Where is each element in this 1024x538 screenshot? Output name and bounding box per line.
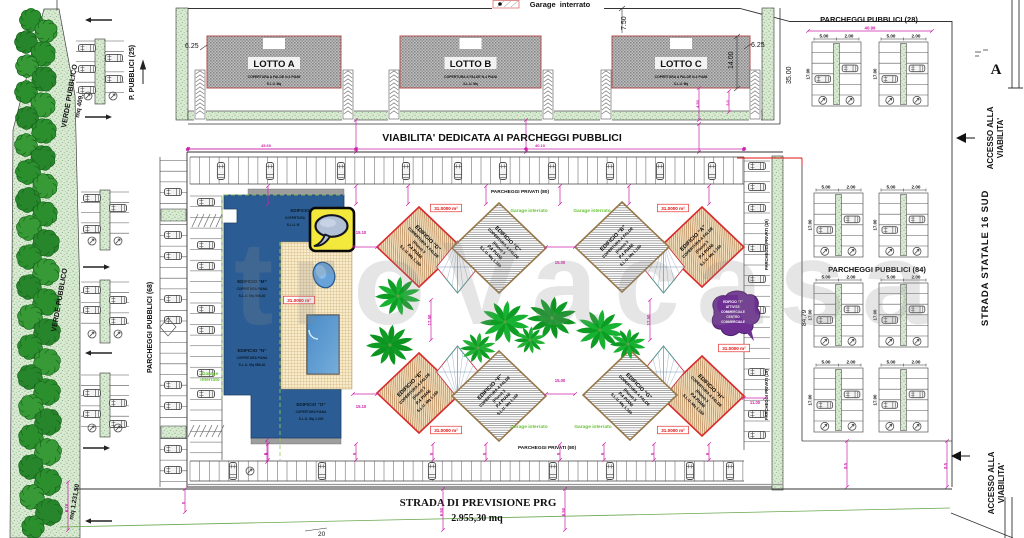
svg-text:ACCESSO ALLA: ACCESSO ALLA	[987, 451, 996, 514]
svg-text:Garage interrato: Garage interrato	[510, 208, 547, 214]
svg-text:6.25: 6.25	[751, 42, 765, 49]
svg-text:VIABILITA': VIABILITA'	[996, 118, 1005, 159]
svg-text:COPERTURA A FALDE N.4 PIANI: COPERTURA A FALDE N.4 PIANI	[248, 75, 301, 79]
svg-text:LOTTO B: LOTTO B	[450, 59, 492, 70]
svg-text:31.0000 m²: 31.0000 m²	[434, 206, 458, 211]
svg-text:6.50: 6.50	[439, 507, 444, 516]
svg-text:40.99: 40.99	[865, 26, 877, 31]
svg-text:S.L.U. Mq: S.L.U. Mq	[463, 82, 478, 86]
svg-text:EDIFICIO: EDIFICIO	[290, 208, 310, 213]
svg-text:15.00: 15.00	[555, 378, 566, 383]
svg-text:3.0: 3.0	[725, 99, 730, 105]
svg-text:S.L.U. Mq: S.L.U. Mq	[674, 82, 689, 86]
svg-text:Garage interrato: Garage interrato	[573, 208, 610, 214]
svg-text:LOTTO A: LOTTO A	[253, 59, 294, 70]
svg-text:Garage interrato: Garage interrato	[530, 0, 591, 9]
svg-text:15.10: 15.10	[356, 404, 367, 409]
svg-text:Garage interrato: Garage interrato	[510, 424, 547, 430]
svg-text:4.50: 4.50	[695, 99, 700, 108]
svg-text:VIABILITA': VIABILITA'	[997, 463, 1006, 504]
svg-text:35.00: 35.00	[786, 66, 793, 84]
svg-text:S.L.U. Mq 988,40: S.L.U. Mq 988,40	[239, 363, 266, 367]
svg-text:8.5: 8.5	[943, 462, 948, 468]
svg-text:6.10: 6.10	[64, 503, 69, 512]
svg-text:31.0000 m²: 31.0000 m²	[434, 428, 458, 433]
svg-text:PARCHEGGI PUBBLICI (28): PARCHEGGI PUBBLICI (28)	[820, 15, 918, 24]
svg-text:ACCESSO ALLA: ACCESSO ALLA	[986, 106, 995, 169]
svg-text:STRADA STATALE 16 SUD: STRADA STATALE 16 SUD	[980, 190, 991, 326]
svg-text:Garage interrato: Garage interrato	[574, 424, 611, 430]
svg-text:20: 20	[318, 531, 326, 538]
svg-text:S.L.U. Mq 1.200: S.L.U. Mq 1.200	[299, 417, 324, 421]
svg-text:troVacasa: troVacasa	[234, 218, 945, 350]
svg-text:6.25: 6.25	[185, 43, 199, 50]
svg-text:VIABILITA' DEDICATA AI PARCHEG: VIABILITA' DEDICATA AI PARCHEGGI PUBBLIC…	[382, 132, 622, 144]
svg-text:COPERTURA PIANA: COPERTURA PIANA	[296, 410, 328, 414]
svg-text:PARCHEGGI PRIVATI (19): PARCHEGGI PRIVATI (19)	[764, 369, 769, 420]
svg-text:STRADA DI PREVISIONE PRG: STRADA DI PREVISIONE PRG	[400, 497, 557, 509]
svg-text:PARCHEGGI PRIVATI (80): PARCHEGGI PRIVATI (80)	[491, 189, 550, 195]
svg-text:P. PUBBLICI (25): P. PUBBLICI (25)	[129, 45, 136, 100]
svg-text:31.0000 m²: 31.0000 m²	[661, 206, 685, 211]
svg-text:S.L.U. Mq: S.L.U. Mq	[267, 82, 282, 86]
svg-text:COPERTURA A FALDE N.4 PIANI: COPERTURA A FALDE N.4 PIANI	[444, 75, 497, 79]
svg-text:45.60: 45.60	[261, 143, 272, 148]
svg-text:COPERTURA PIANA: COPERTURA PIANA	[237, 356, 269, 360]
svg-text:40.10: 40.10	[535, 143, 546, 148]
svg-text:Garage: Garage	[202, 371, 219, 377]
svg-text:PARCHEGGI PUBBLICI (68): PARCHEGGI PUBBLICI (68)	[147, 282, 154, 373]
svg-text:6.50: 6.50	[561, 507, 566, 516]
svg-text:EDIFICIO “O”: EDIFICIO “O”	[296, 402, 325, 407]
svg-text:5: 5	[263, 452, 268, 455]
svg-text:PARCHEGGI PRIVATI (80): PARCHEGGI PRIVATI (80)	[518, 445, 577, 451]
svg-text:8.5: 8.5	[843, 462, 848, 468]
svg-text:interrato: interrato	[200, 377, 220, 383]
svg-text:2.955,30 mq: 2.955,30 mq	[451, 513, 503, 524]
svg-text:11.00: 11.00	[750, 400, 761, 405]
svg-text:31.0000 m²: 31.0000 m²	[661, 428, 685, 433]
svg-text:A: A	[991, 62, 1002, 78]
svg-text:14.00: 14.00	[728, 51, 735, 69]
svg-text:LOTTO C: LOTTO C	[660, 59, 702, 70]
svg-text:COPERTURA A FALDE N.4 PIANI: COPERTURA A FALDE N.4 PIANI	[655, 75, 708, 79]
